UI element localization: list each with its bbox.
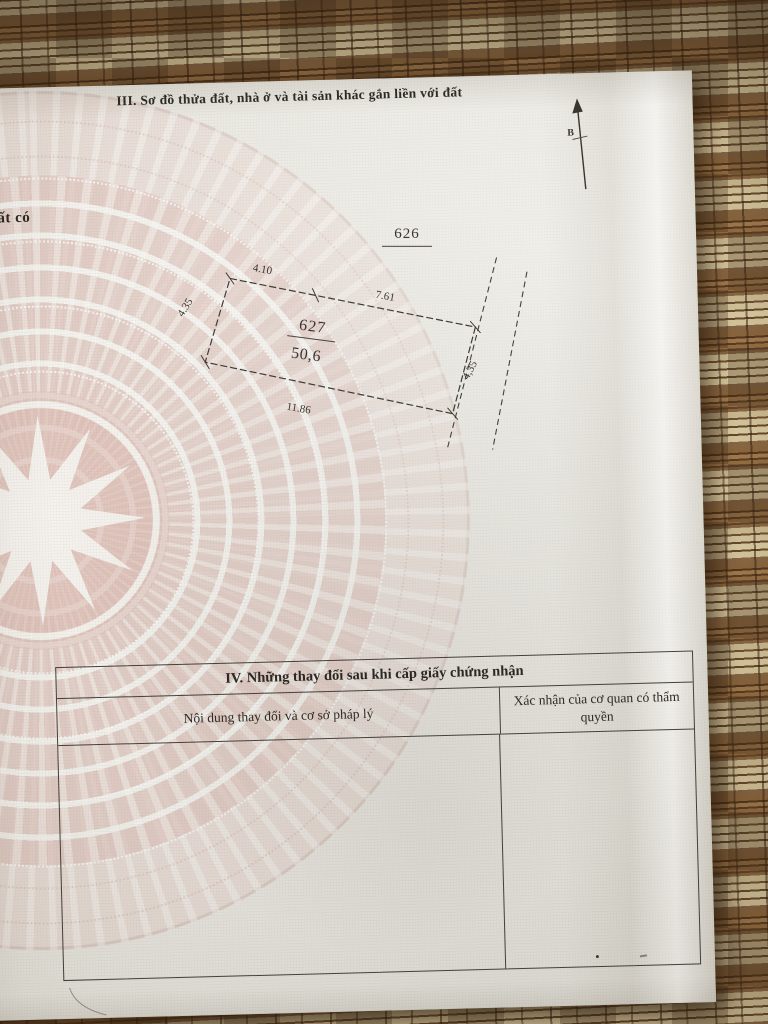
plot-626-label: 626 <box>382 226 432 247</box>
north-arrow-icon <box>566 97 599 194</box>
north-label: B <box>567 127 574 138</box>
pen-mark <box>640 954 647 956</box>
photo-of-land-certificate: III. Sơ đồ thửa đất, nhà ở và tài sản kh… <box>0 0 768 1024</box>
table-body-row <box>58 730 700 980</box>
plot-627-boundary <box>203 272 478 420</box>
edge-text-fragment: ất có <box>0 210 31 228</box>
column-header-authority-confirmation: Xác nhận của cơ quan có thẩm quyền <box>499 682 694 733</box>
section-iii-title: III. Sơ đồ thửa đất, nhà ở và tài sản kh… <box>116 84 462 109</box>
paper-sheet: III. Sơ đồ thửa đất, nhà ở và tài sản kh… <box>0 70 716 1021</box>
pen-mark <box>596 955 599 958</box>
change-content-cell <box>58 735 505 980</box>
plot-area-label: 50,6 <box>290 345 322 367</box>
changes-table: IV. Những thay đổi sau khi cấp giấy chứn… <box>55 650 701 981</box>
north-arrow: B <box>566 97 599 194</box>
paper-crease <box>59 979 130 1021</box>
confirmation-cell <box>499 730 700 969</box>
